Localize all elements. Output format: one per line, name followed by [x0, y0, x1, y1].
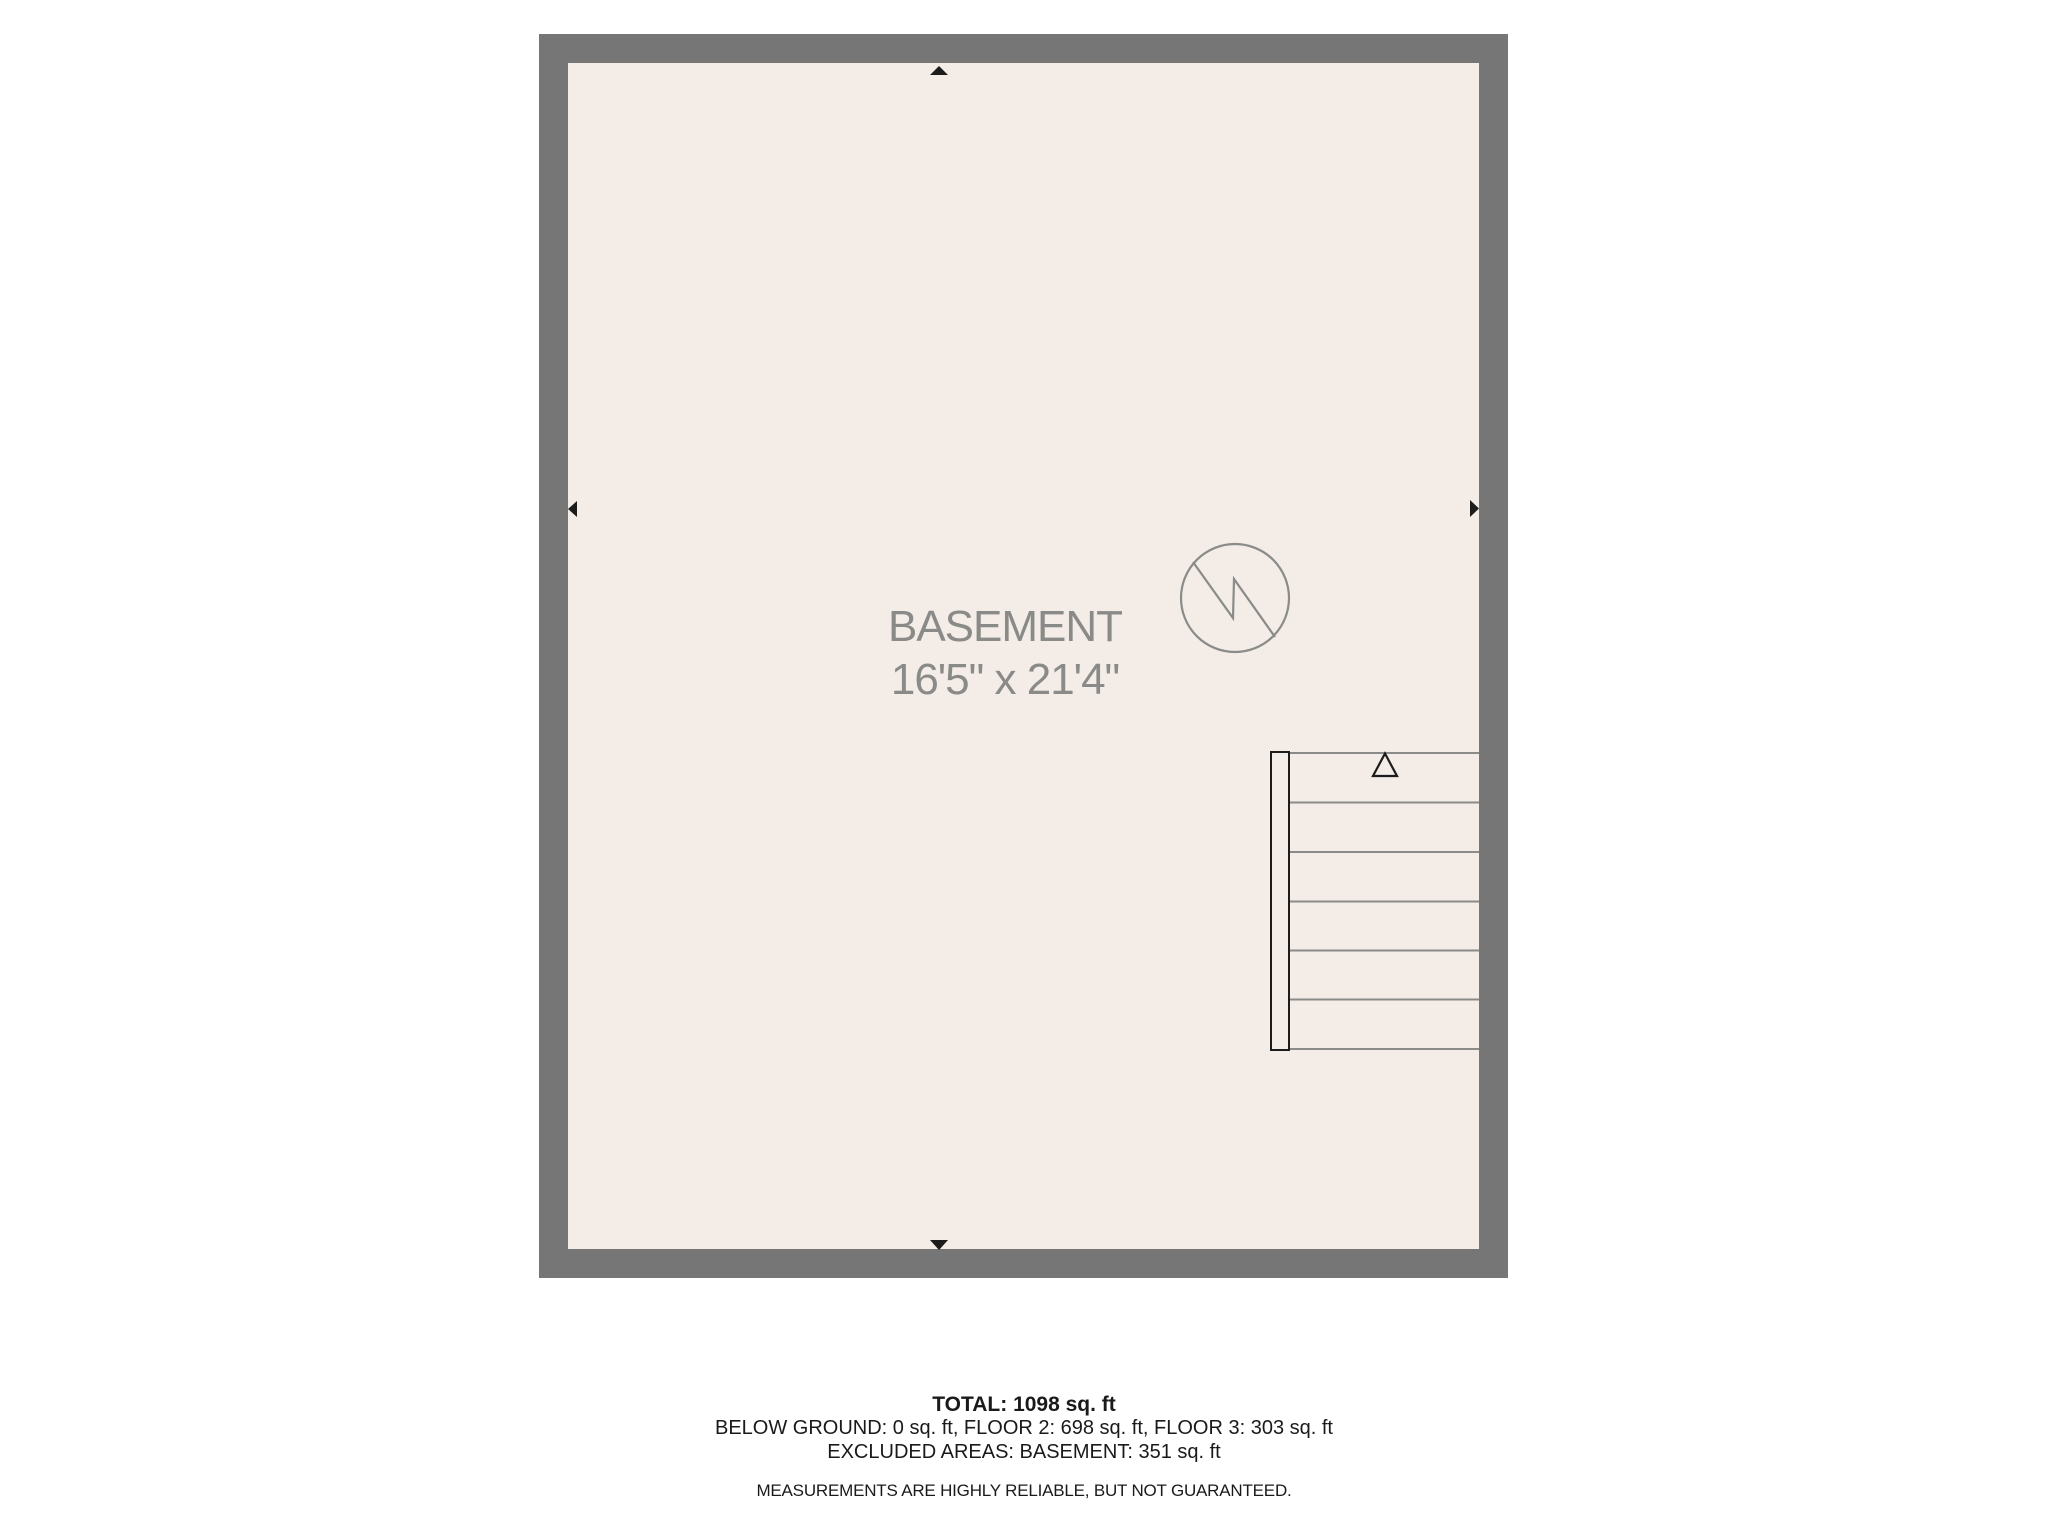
arrow-left-icon — [568, 501, 577, 517]
staircase — [1271, 752, 1479, 1050]
room-dimensions: 16'5" x 21'4" — [568, 653, 1442, 706]
arrow-down-icon — [930, 1240, 948, 1250]
floor-areas-text: BELOW GROUND: 0 sq. ft, FLOOR 2: 698 sq.… — [0, 1417, 2048, 1441]
total-area-text: TOTAL: 1098 sq. ft — [0, 1393, 2048, 1417]
stair-rail — [1271, 752, 1289, 1050]
room-name: BASEMENT — [568, 600, 1442, 653]
room-label: BASEMENT 16'5" x 21'4" — [568, 600, 1442, 706]
floor-plan-page: BASEMENT 16'5" x 21'4" TOTAL: 1098 sq. f… — [0, 0, 2048, 1536]
arrow-right-icon — [1470, 500, 1479, 517]
disclaimer-text: MEASUREMENTS ARE HIGHLY RELIABLE, BUT NO… — [0, 1481, 2048, 1501]
excluded-areas-text: EXCLUDED AREAS: BASEMENT: 351 sq. ft — [0, 1441, 2048, 1465]
up-triangle-icon — [1373, 754, 1397, 777]
arrow-up-icon — [930, 66, 948, 75]
area-summary: TOTAL: 1098 sq. ft BELOW GROUND: 0 sq. f… — [0, 1393, 2048, 1501]
